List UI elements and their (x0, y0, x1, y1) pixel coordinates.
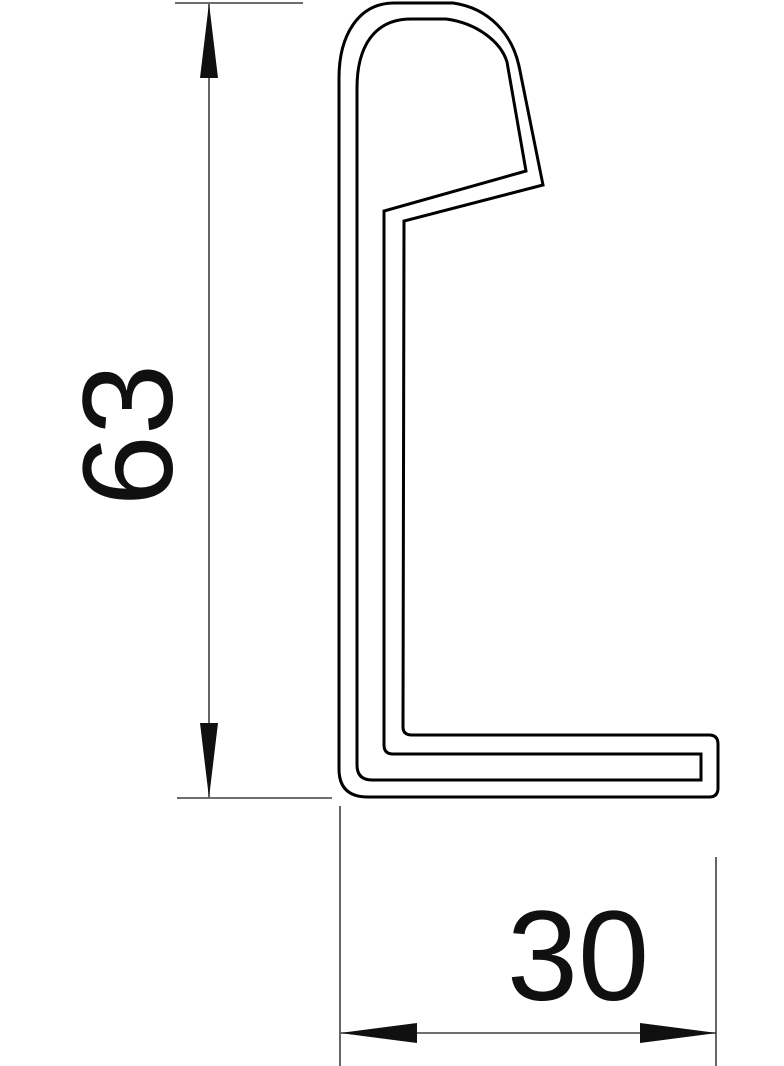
width-arrowhead-right-icon (640, 1023, 717, 1043)
profile-inner-outline (357, 19, 701, 780)
height-arrowhead-down-icon (200, 723, 218, 798)
technical-drawing: 63 30 (0, 0, 784, 1066)
height-dimension-label: 63 (57, 364, 200, 506)
width-dimension-label: 30 (507, 885, 649, 1028)
width-dimension: 30 (340, 806, 717, 1066)
profile-cross-section (339, 3, 718, 797)
drawing-canvas: 63 30 (0, 0, 784, 1066)
width-arrowhead-left-icon (340, 1023, 417, 1043)
height-dimension: 63 (57, 3, 332, 798)
height-arrowhead-up-icon (200, 3, 218, 78)
profile-outer-outline (339, 3, 718, 797)
